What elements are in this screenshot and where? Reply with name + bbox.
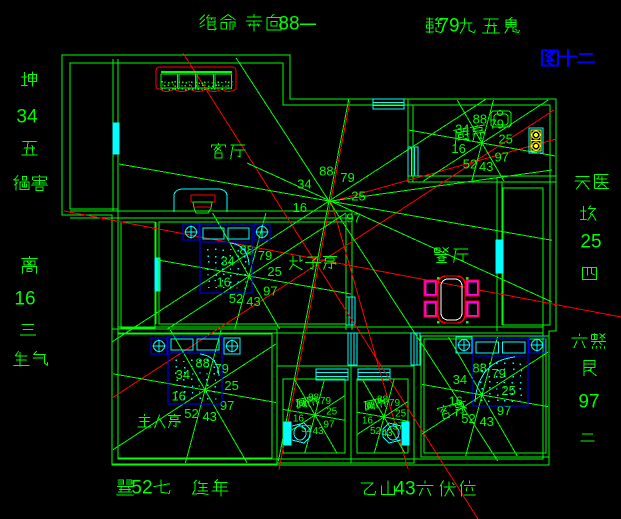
svg-text:88: 88 bbox=[473, 112, 487, 127]
svg-text:16: 16 bbox=[171, 389, 185, 404]
svg-text:16: 16 bbox=[362, 415, 374, 426]
svg-text:97: 97 bbox=[346, 211, 360, 226]
svg-text:25: 25 bbox=[501, 383, 515, 398]
svg-text:25: 25 bbox=[395, 409, 407, 420]
svg-text:25: 25 bbox=[498, 131, 512, 146]
svg-text:25: 25 bbox=[580, 232, 601, 253]
svg-text:52: 52 bbox=[370, 426, 382, 437]
svg-text:25: 25 bbox=[351, 188, 365, 203]
svg-text:43: 43 bbox=[394, 479, 415, 500]
svg-text:16: 16 bbox=[451, 141, 465, 156]
svg-text:43: 43 bbox=[312, 426, 324, 437]
svg-text:43: 43 bbox=[246, 294, 260, 309]
svg-text:97: 97 bbox=[497, 403, 511, 418]
svg-text:43: 43 bbox=[202, 409, 216, 424]
svg-text:52: 52 bbox=[131, 478, 152, 499]
svg-text:88: 88 bbox=[319, 164, 333, 179]
svg-text:43: 43 bbox=[479, 414, 493, 429]
svg-text:79: 79 bbox=[491, 366, 505, 381]
svg-text:97: 97 bbox=[323, 419, 335, 430]
svg-text:79: 79 bbox=[389, 398, 401, 409]
svg-text:88: 88 bbox=[195, 356, 209, 371]
svg-text:34: 34 bbox=[297, 176, 311, 191]
svg-text:16: 16 bbox=[293, 413, 305, 424]
svg-text:79: 79 bbox=[438, 16, 459, 37]
svg-text:34: 34 bbox=[220, 254, 234, 269]
svg-text:88: 88 bbox=[278, 14, 299, 35]
svg-text:79: 79 bbox=[490, 117, 504, 132]
svg-text:25: 25 bbox=[267, 264, 281, 279]
svg-text:16: 16 bbox=[293, 200, 307, 215]
svg-text:43: 43 bbox=[479, 159, 493, 174]
svg-text:25: 25 bbox=[326, 407, 338, 418]
svg-text:52: 52 bbox=[184, 406, 198, 421]
svg-text:52: 52 bbox=[463, 156, 477, 171]
svg-text:79: 79 bbox=[340, 170, 354, 185]
svg-text:34: 34 bbox=[16, 107, 38, 128]
svg-text:97: 97 bbox=[494, 149, 508, 164]
svg-text:79: 79 bbox=[320, 396, 332, 407]
svg-text:25: 25 bbox=[224, 378, 238, 393]
svg-text:97: 97 bbox=[578, 392, 599, 413]
svg-text:79: 79 bbox=[258, 248, 272, 263]
svg-text:34: 34 bbox=[453, 372, 467, 387]
svg-text:16: 16 bbox=[14, 289, 35, 310]
svg-text:97: 97 bbox=[263, 283, 277, 298]
